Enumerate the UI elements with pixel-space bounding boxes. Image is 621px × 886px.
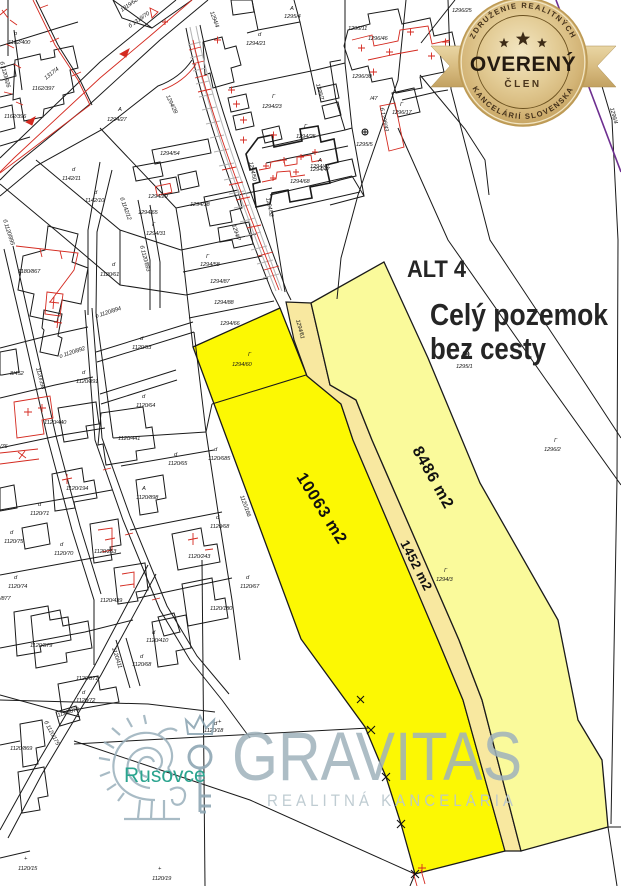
svg-text:1162/397: 1162/397 (32, 86, 55, 92)
svg-text:REALITNÁ KANCELÁRIA: REALITNÁ KANCELÁRIA (267, 791, 517, 810)
svg-text:1120/64: 1120/64 (136, 403, 155, 409)
svg-text:1295/4: 1295/4 (284, 14, 301, 20)
svg-text:1294/58: 1294/58 (200, 262, 221, 268)
svg-text:1120/70: 1120/70 (54, 551, 74, 557)
svg-text:1120/61: 1120/61 (100, 272, 119, 278)
svg-text:1142/11: 1142/11 (62, 176, 81, 182)
svg-text:1162/400: 1162/400 (8, 40, 31, 46)
svg-text:1120/869: 1120/869 (10, 746, 33, 752)
svg-text:1120/871: 1120/871 (76, 676, 98, 682)
svg-text:1120/879: 1120/879 (30, 643, 53, 649)
svg-text:1294/25: 1294/25 (296, 134, 317, 140)
svg-text:1120/19: 1120/19 (152, 876, 172, 882)
svg-text:1142/10: 1142/10 (85, 198, 105, 204)
svg-text:1120/65: 1120/65 (168, 461, 188, 467)
svg-text:1294/3: 1294/3 (436, 577, 454, 583)
svg-text:1120/75: 1120/75 (4, 539, 24, 545)
svg-text:1120/243: 1120/243 (188, 554, 211, 560)
svg-text:1120/898: 1120/898 (136, 495, 159, 501)
svg-text:1296/46: 1296/46 (368, 36, 389, 42)
svg-text:1120/440: 1120/440 (44, 420, 67, 426)
svg-text:1294/68: 1294/68 (290, 179, 311, 185)
svg-text:/877: /877 (0, 596, 11, 602)
svg-text:1294/88: 1294/88 (214, 300, 235, 306)
svg-text:1120/63: 1120/63 (132, 345, 152, 351)
svg-text:1120/194: 1120/194 (66, 486, 88, 492)
svg-text:1120/68: 1120/68 (132, 662, 152, 668)
svg-text:1180/867: 1180/867 (18, 269, 41, 275)
svg-text:1295/5: 1295/5 (356, 142, 374, 148)
svg-text:8/452: 8/452 (10, 371, 24, 377)
svg-text:1296/11: 1296/11 (348, 26, 367, 32)
svg-text:1294/21: 1294/21 (246, 41, 266, 47)
svg-text:1120/180: 1120/180 (210, 606, 233, 612)
svg-text:1162/396: 1162/396 (4, 114, 27, 120)
svg-text:ČLEN: ČLEN (504, 77, 541, 90)
svg-text:1296/17: 1296/17 (392, 110, 413, 116)
svg-text:A: A (141, 486, 146, 492)
svg-text:1120/68: 1120/68 (210, 524, 230, 530)
svg-text:1296/30: 1296/30 (352, 74, 373, 80)
svg-text:1294/23: 1294/23 (262, 104, 283, 110)
svg-text:1120/71: 1120/71 (30, 511, 49, 517)
svg-text:1120/685: 1120/685 (208, 456, 231, 462)
svg-text:1294/38: 1294/38 (190, 202, 211, 208)
svg-text:bez cesty: bez cesty (430, 331, 547, 366)
svg-text:1294/65: 1294/65 (138, 210, 159, 216)
svg-text:GRAVITAS: GRAVITAS (232, 718, 522, 795)
svg-text:1120/891: 1120/891 (76, 379, 98, 385)
svg-text:Rusovce: Rusovce (124, 764, 206, 787)
svg-text:/76: /76 (0, 444, 8, 450)
svg-text:1120/72: 1120/72 (76, 698, 96, 704)
svg-text:1294/47: 1294/47 (310, 164, 331, 170)
svg-text:A: A (117, 107, 122, 113)
svg-text:ALT 4: ALT 4 (407, 256, 467, 283)
svg-text:1120/67: 1120/67 (240, 584, 260, 590)
svg-text:1294/60: 1294/60 (232, 362, 253, 368)
svg-text:1120/74: 1120/74 (8, 584, 27, 590)
svg-text:1120/439: 1120/439 (100, 598, 123, 604)
svg-text:1294/27: 1294/27 (107, 117, 128, 123)
svg-text:A: A (289, 6, 294, 12)
svg-text:1294/29: 1294/29 (148, 194, 169, 200)
svg-text:/47: /47 (369, 96, 378, 102)
svg-text:1120/253: 1120/253 (94, 549, 117, 555)
svg-text:1296/25: 1296/25 (452, 8, 473, 14)
svg-text:1120/15: 1120/15 (18, 866, 38, 872)
svg-text:OVERENÝ: OVERENÝ (470, 52, 576, 76)
svg-text:Celý pozemok: Celý pozemok (430, 297, 609, 332)
svg-text:1294/87: 1294/87 (210, 279, 231, 285)
svg-text:1294/31: 1294/31 (146, 231, 166, 237)
svg-text:1294/66: 1294/66 (220, 321, 241, 327)
svg-text:1120/410: 1120/410 (146, 638, 169, 644)
svg-text:1120/441: 1120/441 (118, 436, 140, 442)
svg-text:1294/54: 1294/54 (160, 151, 180, 157)
svg-text:1296/2: 1296/2 (544, 447, 562, 453)
